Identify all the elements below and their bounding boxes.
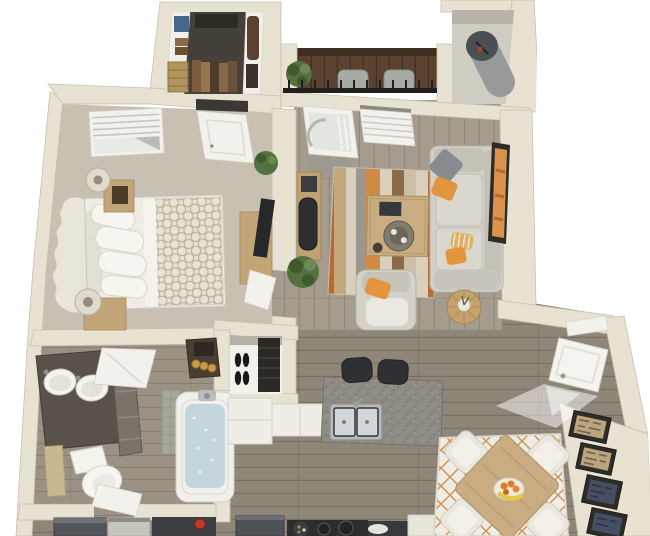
wicker-basket — [168, 62, 188, 92]
bar-stool — [341, 357, 373, 383]
bedroom-plant — [254, 151, 278, 175]
hall-closet — [230, 336, 282, 394]
hanging-clothes-row — [192, 60, 237, 92]
floor-plan-render — [0, 0, 650, 536]
shelf-items — [246, 64, 258, 88]
candle — [200, 362, 208, 370]
closet-shelving — [258, 338, 280, 392]
bedroom-window — [89, 108, 164, 157]
books — [194, 342, 214, 356]
utility-shadow — [452, 10, 514, 24]
faucet — [44, 370, 49, 375]
tablet — [379, 202, 401, 216]
living-plant — [287, 256, 319, 288]
burner — [339, 521, 353, 535]
linen-shelf — [186, 338, 220, 378]
floor-plan-image — [0, 0, 650, 536]
top-shelf-items — [195, 14, 238, 28]
living-window — [360, 105, 415, 146]
walk-in-closet — [166, 12, 264, 94]
range-cooktop — [287, 520, 368, 536]
sliding-balcony-door — [303, 106, 358, 158]
white-dish — [368, 524, 388, 534]
armchair — [356, 270, 416, 330]
hanging-garment — [247, 16, 259, 60]
pillow — [100, 275, 148, 299]
fruit-bowl — [494, 478, 524, 500]
cabinet-run — [228, 398, 272, 444]
desk — [297, 172, 321, 260]
bedroom-east-wall-upper — [272, 108, 296, 272]
clothes-stack — [175, 47, 188, 55]
bar-stool — [377, 359, 408, 385]
coffee-table — [366, 195, 428, 256]
laptop — [301, 176, 317, 192]
faucet — [76, 376, 81, 381]
candle — [208, 364, 216, 372]
office-chair — [299, 198, 317, 250]
clothes-stack — [175, 38, 188, 46]
bath-water — [185, 404, 225, 488]
closet-door-opening — [196, 99, 248, 112]
dining-area — [434, 428, 572, 536]
closet-door-knob — [210, 144, 213, 147]
laundry-counter — [152, 517, 216, 536]
door-knob — [561, 374, 566, 379]
burner — [318, 523, 330, 535]
background-mask — [536, 0, 650, 312]
food-plate — [294, 522, 309, 536]
patterned-duvet — [155, 197, 224, 306]
nightstand-box — [112, 186, 128, 204]
candle — [192, 360, 200, 368]
laundry-nook — [54, 517, 216, 536]
round-pouf — [447, 290, 481, 324]
red-kettle — [195, 519, 205, 529]
kitchen-sink — [330, 398, 382, 440]
utility-closet — [452, 10, 514, 104]
folded-denim — [174, 16, 189, 32]
bath-mat — [44, 445, 65, 496]
bathtub — [176, 390, 234, 502]
